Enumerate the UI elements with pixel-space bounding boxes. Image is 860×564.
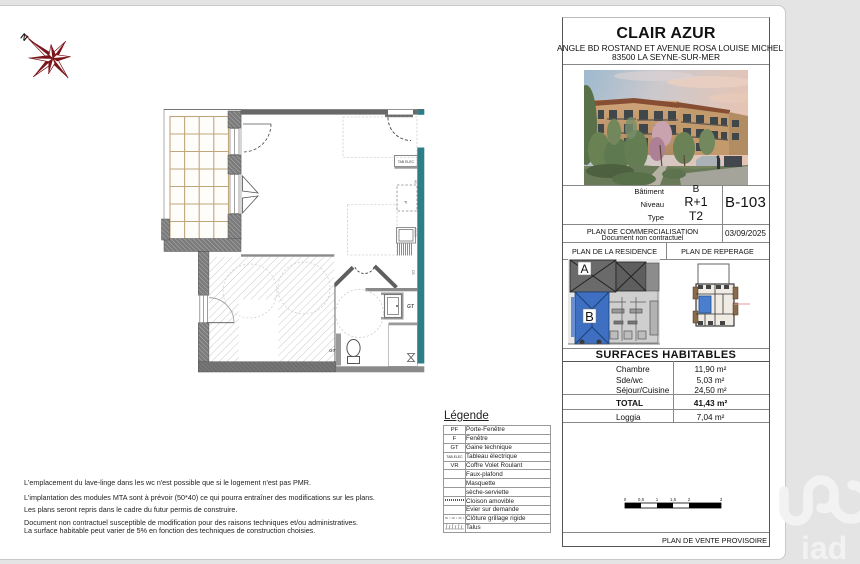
svg-text:N: N	[19, 31, 30, 43]
svg-text:GT: GT	[407, 304, 415, 310]
svg-text:CE: CE	[411, 270, 415, 275]
svg-text:1: 1	[656, 497, 659, 502]
svg-text:iad: iad	[801, 530, 847, 564]
svg-text:RE: RE	[414, 180, 418, 184]
svg-text:F: F	[403, 201, 408, 204]
svg-text:1,5: 1,5	[670, 497, 677, 502]
svg-text:3: 3	[720, 497, 723, 502]
svg-text:0,5: 0,5	[638, 497, 645, 502]
svg-text:F.ECO: F.ECO	[414, 228, 418, 238]
svg-text:A: A	[580, 262, 588, 276]
svg-text:0: 0	[624, 497, 627, 502]
svg-text:2: 2	[688, 497, 691, 502]
svg-text:B: B	[585, 309, 594, 324]
svg-text:TAB ELEC: TAB ELEC	[398, 160, 415, 164]
